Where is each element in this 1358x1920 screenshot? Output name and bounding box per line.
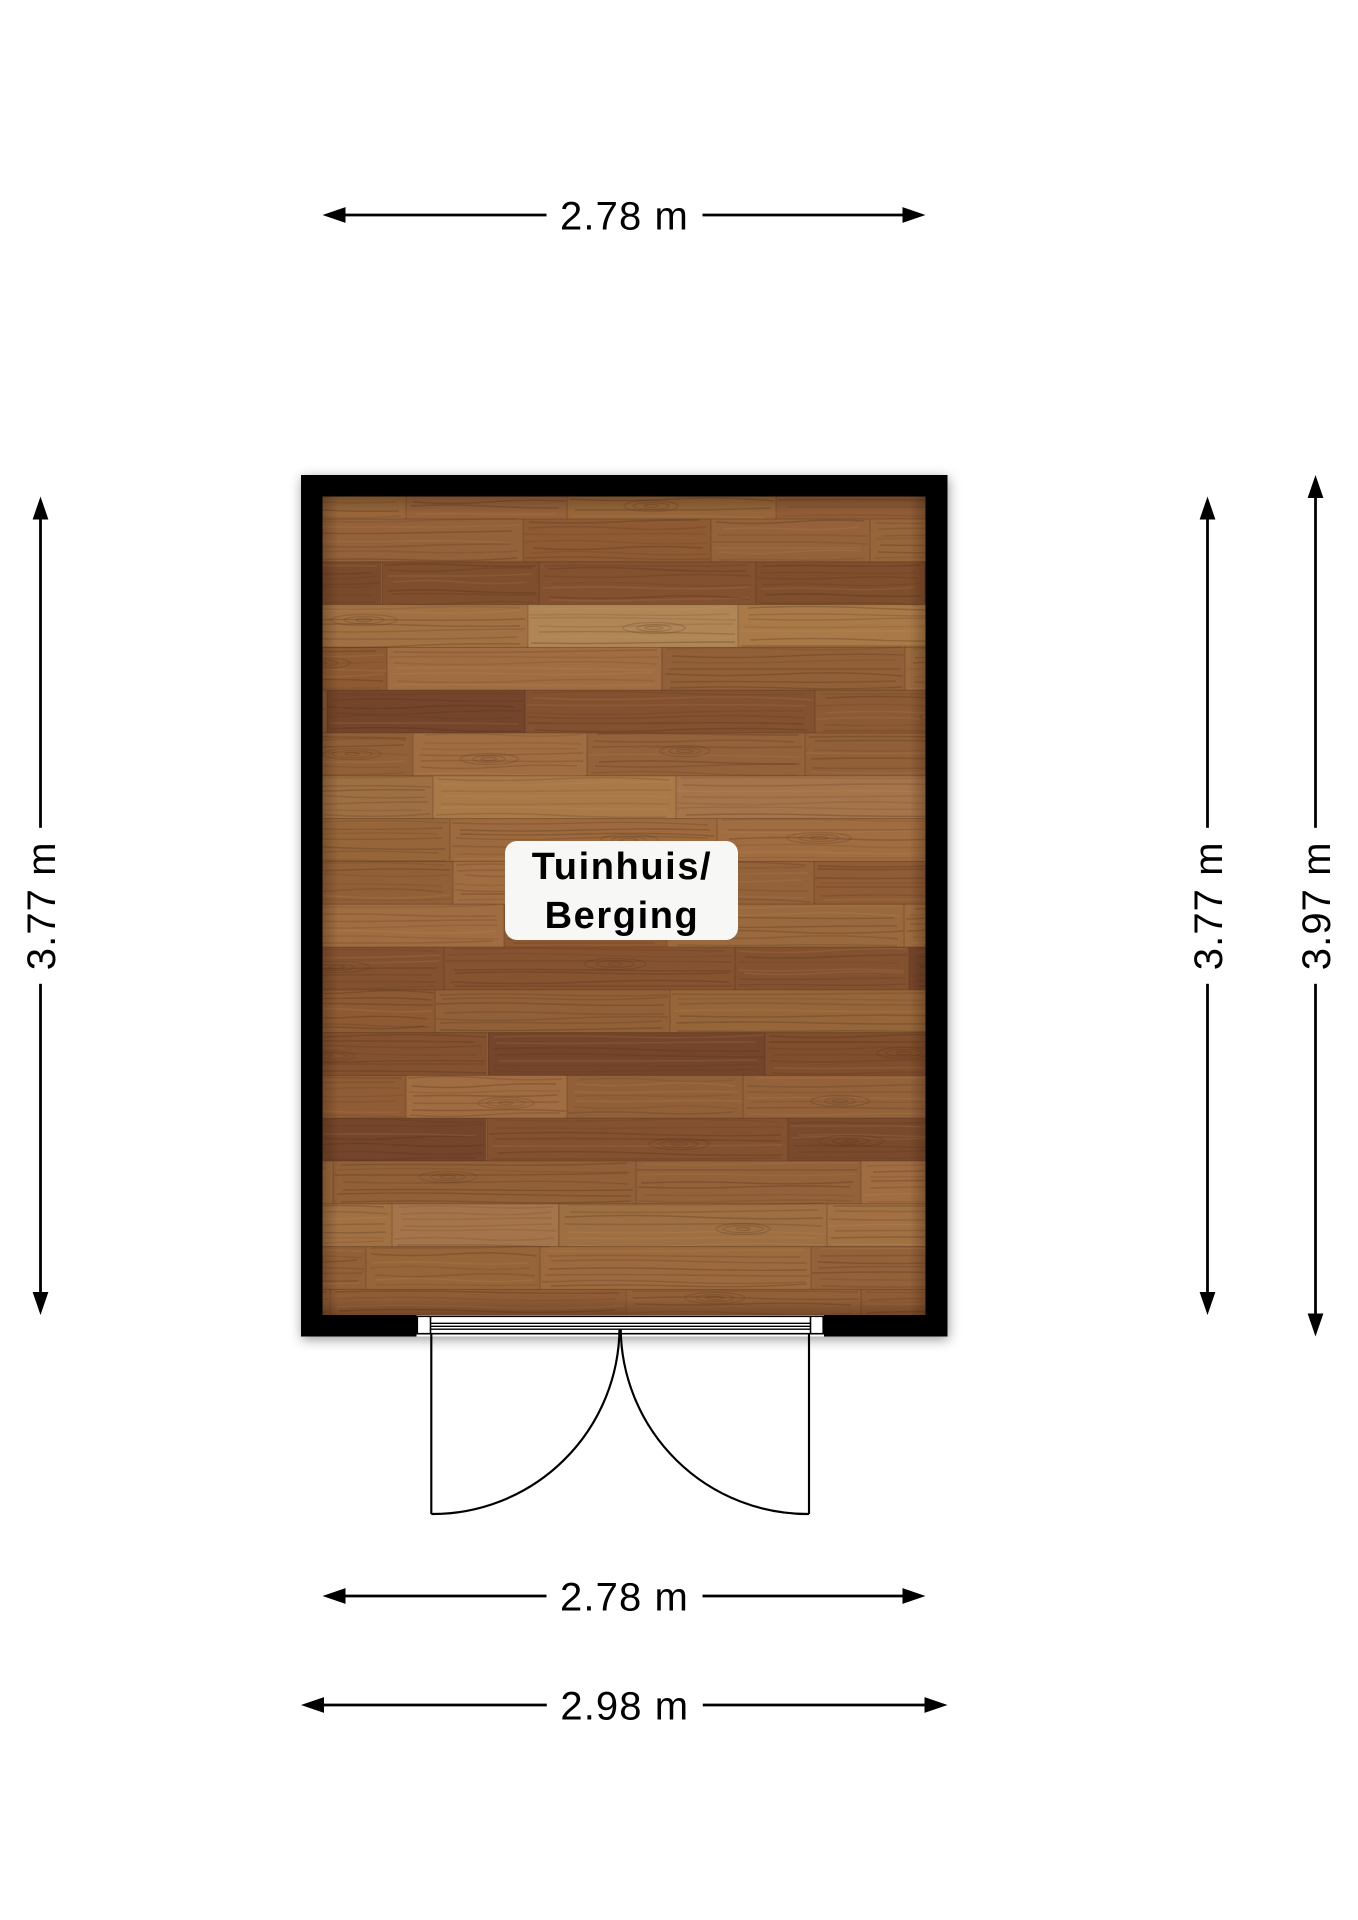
svg-text:2.78 m: 2.78 m xyxy=(560,195,689,239)
svg-text:3.97 m: 3.97 m xyxy=(1295,841,1339,970)
svg-text:3.77 m: 3.77 m xyxy=(1187,841,1231,970)
svg-text:Berging: Berging xyxy=(545,895,700,937)
svg-text:2.98 m: 2.98 m xyxy=(560,1685,689,1729)
svg-text:3.77 m: 3.77 m xyxy=(20,841,64,970)
svg-text:2.78 m: 2.78 m xyxy=(560,1576,689,1620)
svg-text:Tuinhuis/: Tuinhuis/ xyxy=(532,846,712,888)
